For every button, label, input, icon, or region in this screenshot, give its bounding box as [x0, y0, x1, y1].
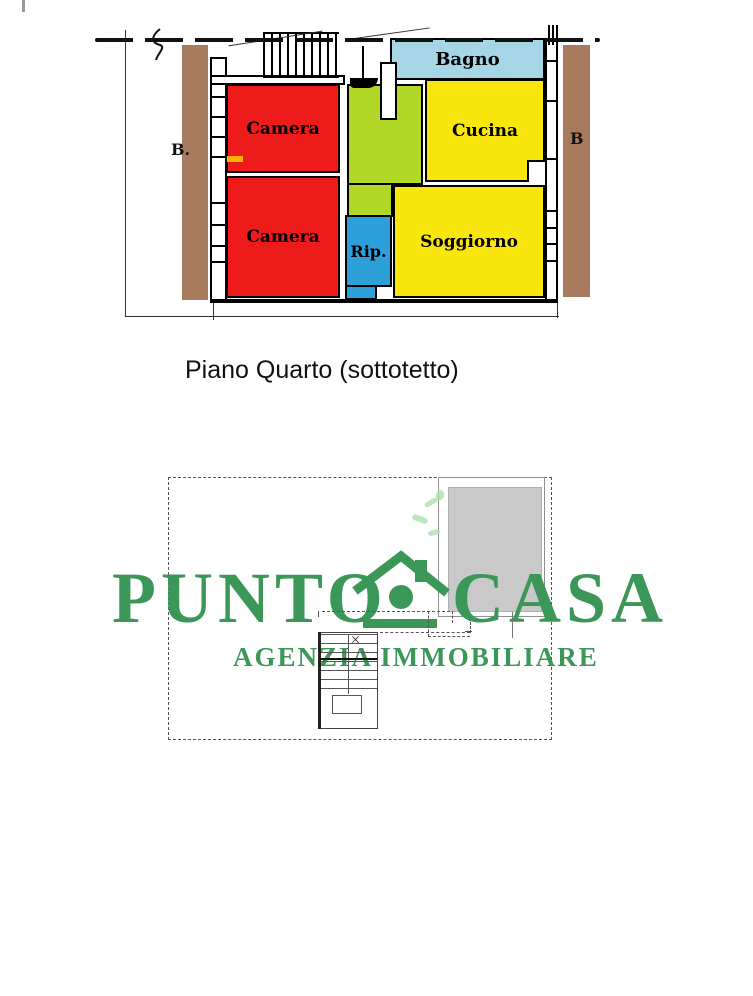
corner-tick	[318, 611, 319, 617]
railing-tick	[556, 25, 558, 45]
dashed-line	[380, 632, 470, 633]
stair-landing	[332, 695, 362, 714]
boundary-tick	[213, 302, 214, 320]
room-soggiorno-label: Soggiorno	[420, 232, 518, 252]
plot-boundary-line-vertical	[125, 30, 126, 317]
window-tick	[546, 60, 557, 62]
room-camera-top: Camera	[226, 84, 340, 173]
window-tick	[211, 96, 226, 98]
thin-line	[512, 612, 513, 638]
dashed-line	[452, 611, 453, 623]
brand-casa: CASA	[452, 562, 668, 634]
room-camera-bottom: Camera	[226, 176, 340, 298]
room-rip: Rip.	[345, 215, 392, 287]
window-tick	[211, 156, 226, 158]
floor-plan-page: B. B Bagno Cucina Camera Camera Rip. Sog…	[0, 0, 753, 996]
floor-caption: Piano Quarto (sottotetto)	[185, 356, 459, 385]
balcony-left-label: B.	[171, 140, 190, 159]
window-tick	[211, 136, 226, 138]
brand-tagline: AGENZIA IMMOBILIARE	[233, 644, 599, 671]
balcony-left	[182, 45, 208, 300]
window-tick	[211, 261, 226, 263]
boundary-tick	[557, 302, 558, 318]
window-tick	[546, 158, 557, 160]
door-symbol-post	[362, 46, 364, 80]
page-edge-tick	[22, 0, 25, 12]
room-bagno: Bagno	[390, 38, 545, 80]
dashed-line	[428, 611, 429, 637]
window-tick	[546, 100, 557, 102]
railing-tick	[548, 25, 550, 45]
plot-boundary-line-horizontal	[125, 316, 559, 317]
house-with-chimney-icon	[350, 548, 452, 634]
window-tick	[546, 260, 557, 262]
exterior-wall-right	[545, 38, 558, 303]
exterior-wall-left	[210, 57, 227, 303]
wall-notch	[527, 160, 545, 182]
balcony-right	[563, 45, 590, 297]
dashed-line	[428, 636, 470, 637]
room-cucina-label: Cucina	[452, 121, 518, 141]
room-rip-label: Rip.	[350, 242, 386, 261]
corner-tick	[465, 631, 472, 632]
stair-center-line	[348, 634, 349, 694]
room-camera-bottom-label: Camera	[246, 227, 319, 247]
railing-tick	[552, 25, 554, 45]
door-marker	[227, 156, 243, 162]
room-camera-top-label: Camera	[246, 119, 319, 139]
window-tick	[546, 243, 557, 245]
room-hallway-lower	[347, 183, 393, 217]
window-tick	[211, 224, 226, 226]
window-tick	[546, 210, 557, 212]
window-tick	[211, 202, 226, 204]
sketch-squiggle	[146, 27, 172, 63]
stair-cut-line	[320, 658, 377, 660]
room-rip-lower	[345, 285, 377, 300]
window-tick	[546, 227, 557, 229]
dashed-line	[322, 611, 450, 612]
balcony-right-label: B	[570, 129, 584, 148]
room-bagno-label: Bagno	[435, 49, 500, 70]
stair-treads	[321, 634, 377, 694]
brand-punto: PUNTO	[112, 562, 388, 634]
exterior-wall-bottom	[210, 299, 558, 303]
window-tick	[211, 245, 226, 247]
window-tick	[211, 116, 226, 118]
room-soggiorno: Soggiorno	[393, 185, 545, 298]
chimney-flue	[380, 62, 397, 120]
